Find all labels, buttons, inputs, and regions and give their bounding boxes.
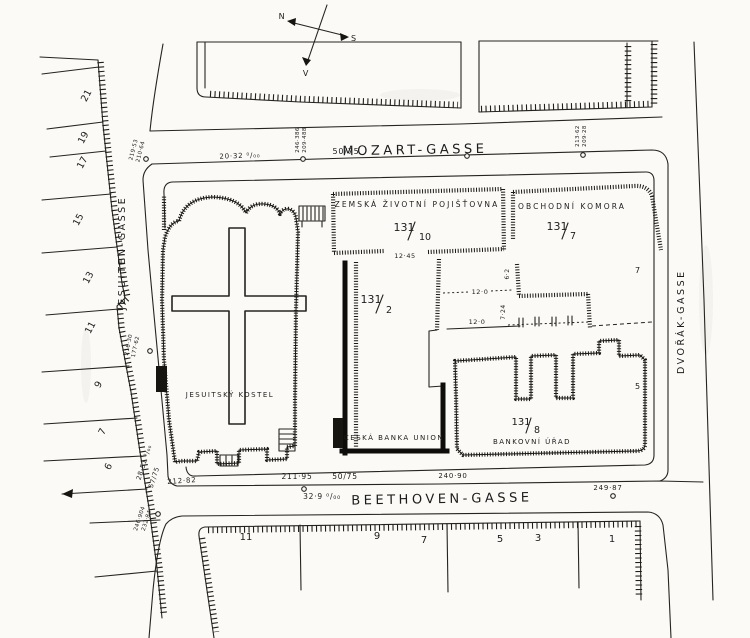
- dimension-label: 6·2: [504, 268, 511, 279]
- beethoven-gasse-label: BEETHOVEN-GASSE: [351, 490, 532, 508]
- jesuiten-gasse-label: JESUITEN-GASSE: [117, 196, 128, 311]
- dimension-label: 12·0: [469, 318, 486, 326]
- left-lots-block: 21 19 17 15 13 11 9 7 6: [40, 57, 164, 618]
- church-label: JESUITSKÝ KOSTEL: [185, 390, 274, 399]
- gradient-label: 32·9 ⁰/₀₀: [303, 492, 341, 501]
- lot-number: 1: [609, 534, 615, 545]
- parcel-subnumber: 7: [570, 231, 576, 242]
- lot-number: 19: [76, 130, 91, 146]
- church-building: JESUITSKÝ KOSTEL: [156, 196, 325, 466]
- insurance-building: ZEMSKÁ ŽIVOTNÍ POJIŠŤOVNA 131 10 12·45: [333, 189, 504, 260]
- scan-smudge: [81, 327, 91, 403]
- mozart-annotations: 20·32 ⁰/₀₀ 50/75 MOZART-GASSE 246·386 20…: [219, 125, 588, 161]
- lot-number: 6: [103, 462, 116, 473]
- parcel-subnumber: 10: [419, 232, 431, 243]
- lot-number: 13: [81, 270, 96, 286]
- length-label: 212·82: [167, 476, 197, 486]
- lot-number: 11: [240, 532, 253, 543]
- block-top-right: [479, 41, 658, 112]
- length-label: 240·90: [438, 472, 467, 480]
- lot-number: 5: [497, 534, 503, 545]
- beethoven-annotations: 212·82 211·95 50/75 32·9 ⁰/₀₀ 240·90 BEE…: [167, 472, 623, 509]
- profile-label: 57/75: [147, 466, 161, 489]
- compass-north-label: N: [279, 12, 286, 21]
- dimension-label: 12·0: [472, 288, 489, 296]
- dvorak-annotations: DVOŘÁK-GASSE: [675, 269, 687, 374]
- parcel-number: 131: [361, 293, 382, 306]
- benchmark-circle: [301, 157, 306, 162]
- stairs-icon: [299, 206, 325, 227]
- lot-number: 15: [71, 212, 86, 228]
- cadastral-plan: N S V 21 19 17: [0, 0, 750, 638]
- insurance-label: ZEMSKÁ ŽIVOTNÍ POJIŠŤOVNA: [335, 200, 500, 209]
- house-number: 5: [635, 382, 641, 391]
- profile-label: 50/75: [332, 472, 358, 481]
- benchmark-circle: [144, 157, 149, 162]
- length-label: 211·95: [281, 472, 312, 481]
- porch: [156, 366, 167, 392]
- jesuiten-annotations: JESUITEN-GASSE 219·53 210·64 216·30 177·…: [117, 138, 161, 531]
- benchmark-circle: [611, 494, 616, 499]
- dimension-label: 7·24: [500, 304, 507, 319]
- benchmark-circle: [302, 487, 307, 492]
- length-label: 249·87: [593, 484, 622, 492]
- parcel-subnumber: 2: [386, 305, 392, 316]
- lot-number: 3: [535, 533, 541, 544]
- bank-union-building: 131 2 ČESKÁ BANKA UNION: [333, 259, 447, 453]
- scan-smudge: [699, 245, 713, 355]
- dimension-label: 12·45: [394, 252, 416, 260]
- benchmark-value: 246·386: [295, 127, 301, 153]
- lot-number: 7: [421, 535, 427, 546]
- house-number: 7: [635, 266, 641, 275]
- lot-number: 9: [93, 380, 106, 391]
- benchmark-circle: [465, 154, 470, 159]
- benchmark-circle: [148, 349, 153, 354]
- bank-office-label: BANKOVNÍ ÚŘAD: [493, 437, 571, 446]
- bank-office-building: 131 8 BANKOVNÍ ÚŘAD: [455, 340, 645, 455]
- arrow-icon: [62, 489, 73, 498]
- block-bottom: 11 9 7 5 3 1: [199, 521, 641, 638]
- lot-number: 21: [79, 88, 94, 104]
- parcel-subnumber: 8: [534, 425, 540, 436]
- compass-v-label: V: [303, 69, 309, 78]
- benchmark-value: 209·28: [582, 125, 588, 147]
- dvorak-gasse-label: DVOŘÁK-GASSE: [675, 269, 687, 374]
- parcel-number: 131: [547, 220, 568, 233]
- lot-number: 7: [97, 427, 110, 438]
- benchmark-value: 209·488: [302, 127, 308, 153]
- lot-number: 17: [75, 155, 90, 171]
- gradient-label: 20·32 ⁰/₀₀: [219, 151, 260, 160]
- porch: [333, 418, 343, 448]
- chamber-label: OBCHODNÍ KOMORA: [518, 202, 626, 211]
- chamber-building: OBCHODNÍ KOMORA 131 7: [513, 186, 661, 250]
- benchmark-circle: [156, 512, 161, 517]
- bank-union-label: ČESKÁ BANKA UNION: [344, 433, 444, 442]
- scan-smudge: [380, 89, 460, 101]
- benchmark-circle: [581, 153, 586, 158]
- courtyard-walls: 12·0 12·0 7·24 6·2: [443, 264, 652, 329]
- lot-number: 9: [374, 531, 380, 542]
- plan-drawing: N S V 21 19 17: [0, 0, 750, 638]
- benchmark-value: 213·62: [575, 125, 581, 147]
